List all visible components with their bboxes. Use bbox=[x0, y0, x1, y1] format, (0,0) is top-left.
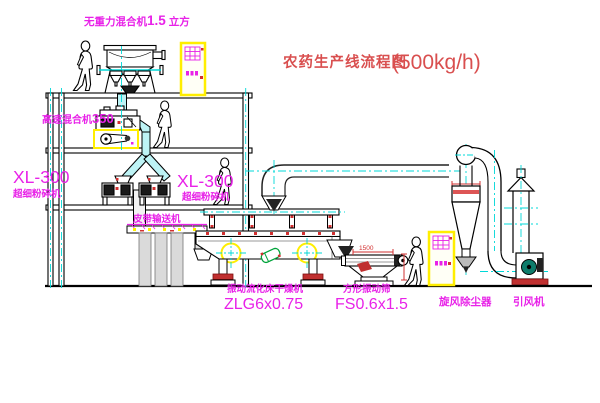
cyclone-band bbox=[453, 190, 479, 194]
label-cyclone: 旋风除尘器 bbox=[438, 295, 492, 308]
diagram-title: 农药生产线流程图 bbox=[282, 53, 407, 71]
fan-motor-body bbox=[537, 258, 543, 272]
person-figure bbox=[153, 101, 171, 148]
label-dryer-model: ZLG6x0.75 bbox=[224, 296, 303, 313]
vibrating-screen bbox=[342, 249, 408, 286]
induced-draft-fan bbox=[512, 253, 548, 285]
label-screen-model: FS0.6x1.5 bbox=[335, 296, 408, 313]
conveyor-supports bbox=[139, 233, 183, 286]
cyclone-separator bbox=[452, 144, 480, 275]
beam-top bbox=[46, 93, 252, 98]
indicator-light bbox=[200, 76, 203, 79]
mixer-discharge bbox=[121, 86, 139, 93]
control-cabinet-top bbox=[181, 43, 205, 95]
spring-mounts bbox=[210, 215, 333, 228]
label-mill-right-model: XL-300 bbox=[177, 171, 234, 191]
indicator-light bbox=[201, 48, 204, 51]
person-figure bbox=[74, 41, 93, 91]
flow-diagram-canvas: 无重力混合机1.5 立方 农药生产线流程图 (500kg/h) 高速混合机350… bbox=[0, 0, 600, 403]
pulverizer-left bbox=[102, 176, 133, 205]
cabinet-buttons bbox=[435, 261, 447, 266]
exhaust-duct bbox=[246, 160, 460, 214]
high-speed-mixer-drive-box bbox=[94, 130, 138, 148]
label-dryer-name: 振动流化床干燥机 bbox=[227, 283, 304, 295]
motor-pulley bbox=[125, 136, 131, 142]
indicator-light bbox=[448, 262, 451, 265]
label-screen-name: 方形振动筛 bbox=[343, 283, 391, 295]
label-fan: 引风机 bbox=[513, 295, 545, 308]
label-mill-left-model: XL-300 bbox=[13, 167, 70, 187]
pesticide-line-flow-diagram: 无重力混合机1.5 立方 农药生产线流程图 (500kg/h) 高速混合机350… bbox=[0, 0, 600, 403]
cabinet-buttons bbox=[186, 71, 198, 76]
indicator-light bbox=[450, 237, 453, 240]
label-mill-right-name: 超细粉碎机 bbox=[181, 191, 230, 203]
dim-screen-length: 1500 bbox=[359, 245, 374, 252]
label-belt-conveyor: 皮带输送机 bbox=[132, 213, 181, 225]
mixer-valves bbox=[110, 71, 150, 86]
label-mill-left-name: 超细粉碎机 bbox=[12, 188, 61, 200]
fan-base bbox=[512, 279, 548, 285]
fluid-bed-dryer bbox=[196, 209, 354, 285]
gravity-free-mixer bbox=[97, 46, 165, 94]
indicator-light bbox=[118, 121, 121, 124]
diagram-title-capacity: (500kg/h) bbox=[392, 51, 481, 74]
control-cabinet-ground bbox=[429, 232, 454, 285]
label-gravity-mixer: 无重力混合机1.5 立方 bbox=[83, 13, 190, 28]
